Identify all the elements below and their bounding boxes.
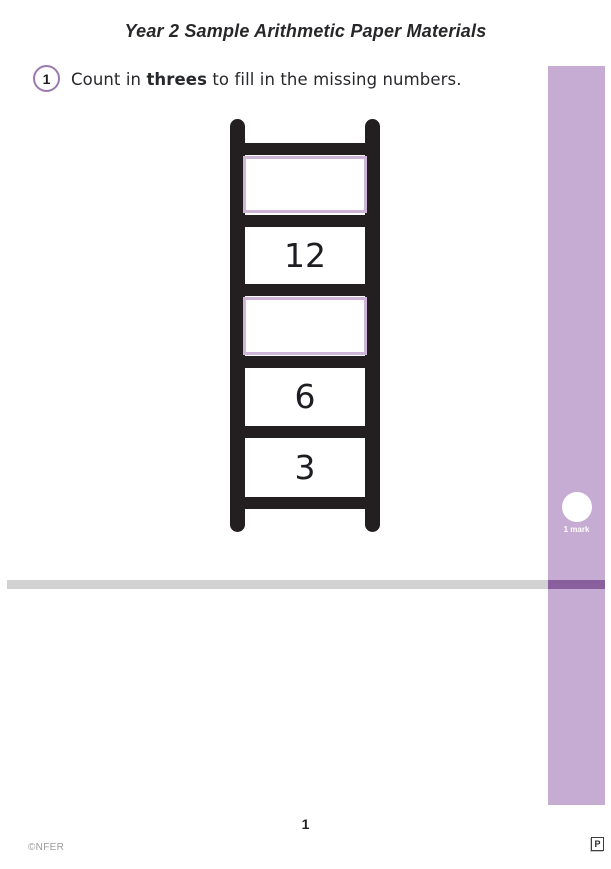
answer-box[interactable] [243,297,367,355]
page-title: Year 2 Sample Arithmetic Paper Materials [0,21,611,42]
ladder-number: 12 [284,236,326,275]
ladder-right-rail [365,119,380,532]
question-text-prefix: Count in [71,70,146,89]
ladder-number-cell: 12 [245,227,365,284]
copyright-notice: ©NFER [28,842,64,853]
question-text-suffix: to fill in the missing numbers. [207,70,462,89]
worksheet-page: Year 2 Sample Arithmetic Paper Materials… [0,0,611,869]
question-number: 1 [43,71,51,87]
number-ladder: 12 6 3 [230,119,380,532]
question-number-circle: 1 [33,65,60,92]
ladder-rung [236,284,374,296]
section-divider [7,580,548,589]
ladder-number-cell: 6 [245,368,365,425]
ladder-rung [236,426,374,438]
ladder-number: 3 [295,448,316,487]
mark-label: 1 mark [548,525,605,534]
mark-circle [562,492,592,522]
print-marker-badge: P [591,837,604,851]
ladder-rung [236,215,374,227]
question-text-bold: threes [146,70,207,89]
ladder-rung [236,356,374,368]
ladder-number-cell: 3 [245,438,365,496]
ladder-number: 6 [295,377,316,416]
ladder-rung [236,143,374,155]
section-divider-accent [548,580,605,589]
mark-indicator: 1 mark [548,492,605,534]
margin-strip [548,66,605,805]
page-number: 1 [0,816,611,832]
answer-box[interactable] [243,156,367,213]
ladder-rung [236,497,374,509]
question-text: Count in threes to fill in the missing n… [71,70,462,89]
